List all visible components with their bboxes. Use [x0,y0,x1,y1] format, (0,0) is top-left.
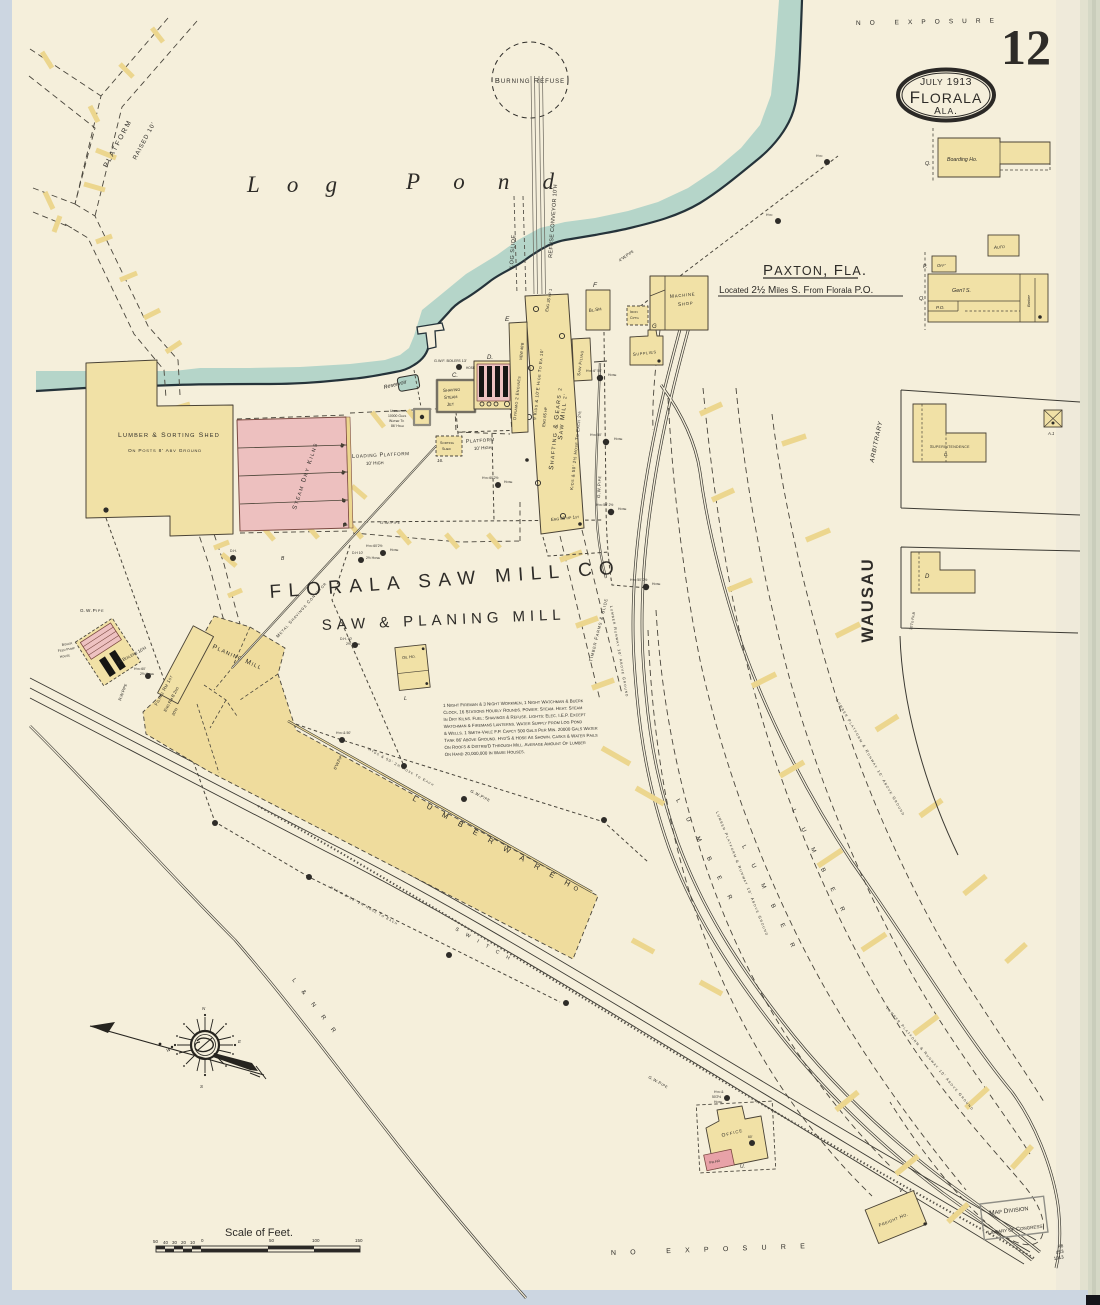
svg-text:10: 10 [190,1240,196,1245]
svg-text:150: 150 [355,1238,363,1243]
svg-text:E: E [505,316,510,323]
svg-text:HOSE: HOSE [714,1100,722,1104]
svg-text:HOSE: HOSE [466,366,475,370]
svg-text:HOSE: HOSE [504,480,512,484]
svg-text:U.: U. [740,1164,745,1170]
svg-text:D.: D. [487,355,493,361]
svg-text:A.1: A.1 [1047,431,1054,436]
svg-text:S: S [200,1084,203,1089]
svg-text:C.: C. [452,373,458,379]
svg-text:D.: D. [944,452,949,457]
svg-text:HYD & 50': HYD & 50' [336,731,351,735]
svg-text:HYD 50' 2½: HYD 50' 2½ [596,503,614,507]
svg-text:Scale of Feet.: Scale of Feet. [225,1227,293,1239]
svg-text:SUPERINTENDENCE: SUPERINTENDENCE [930,444,970,449]
svg-text:Q.: Q. [925,161,931,167]
svg-text:HYD 6" 50': HYD 6" 50' [586,369,602,373]
svg-text:30: 30 [172,1240,178,1245]
svg-text:JULY 1913: JULY 1913 [920,76,972,88]
svg-text:JET: JET [447,401,455,407]
svg-text:HOSE: HOSE [652,582,660,586]
svg-text:G.W.PIPE: G.W.PIPE [80,608,104,613]
svg-text:10000 GALS: 10000 GALS [388,414,406,418]
svg-text:2½ HOSE: 2½ HOSE [346,642,360,646]
svg-text:HYD &: HYD & [714,1090,724,1094]
svg-text:P.O.: P.O. [936,305,945,310]
svg-text:2½ HOSE: 2½ HOSE [140,672,154,676]
svg-text:50: 50 [153,1239,159,1244]
svg-text:HOSE: HOSE [618,507,626,511]
svg-text:HYD 60': HYD 60' [134,667,146,671]
svg-text:HYD 60'2½: HYD 60'2½ [482,476,499,480]
svg-text:PAXTON, FLA.: PAXTON, FLA. [763,262,867,279]
svg-text:HYD: HYD [766,213,772,217]
svg-text:D.H.: D.H. [230,549,237,553]
svg-text:IRON: IRON [630,310,638,314]
svg-text:2½ HOSE: 2½ HOSE [366,556,380,560]
svg-text:STEAM: STEAM [444,394,458,400]
svg-text:HYD: HYD [816,154,822,158]
svg-text:50'2½: 50'2½ [712,1095,721,1099]
svg-text:16.: 16. [437,458,443,463]
svg-text:UNDERWRS: UNDERWRS [390,409,407,413]
svg-text:D.H. 60': D.H. 60' [340,637,352,641]
svg-text:10' HIGH: 10' HIGH [366,460,384,466]
svg-text:86' HIGH: 86' HIGH [391,424,404,428]
svg-text:G.W.F. BOILERS 13': G.W.F. BOILERS 13' [434,359,467,363]
svg-text:OFF': OFF' [937,263,946,268]
svg-text:WATER TK: WATER TK [389,419,404,423]
svg-text:HOSE: HOSE [608,373,616,377]
svg-text:12: 12 [1001,19,1051,75]
svg-text:HOSE: HOSE [390,548,398,552]
svg-text:D.H 10': D.H 10' [352,551,364,555]
svg-text:HYD 50' 2½: HYD 50' 2½ [630,578,648,582]
svg-text:CPTG: CPTG [630,316,639,320]
svg-text:SORTING: SORTING [440,441,455,445]
svg-text:D: D [925,574,930,580]
svg-text:ALA.: ALA. [934,106,958,117]
svg-text:HYD 60'2½: HYD 60'2½ [366,544,383,548]
svg-text:60': 60' [748,1135,753,1139]
svg-text:AUTO: AUTO [993,244,1005,250]
svg-text:LUMBER & SORTING SHED: LUMBER & SORTING SHED [118,432,220,439]
svg-text:HYD 50': HYD 50' [590,433,602,437]
svg-text:40: 40 [163,1240,169,1245]
svg-text:Q.: Q. [919,296,925,302]
svg-text:G.W.PIPE: G.W.PIPE [380,520,401,525]
svg-text:Located 2½ Miles S. From Flora: Located 2½ Miles S. From Florala P.O. [719,285,873,296]
svg-text:L: L [404,696,407,702]
svg-text:G: G [652,324,657,330]
svg-text:WAUSAU: WAUSAU [859,557,877,642]
svg-text:Barber: Barber [1026,294,1031,307]
svg-text:FLORALA: FLORALA [910,88,983,107]
svg-text:Gen'l S.: Gen'l S. [952,288,971,294]
svg-text:20: 20 [181,1240,187,1245]
svg-text:50: 50 [269,1238,275,1243]
svg-text:SHED: SHED [442,447,452,451]
svg-text:100: 100 [312,1238,320,1243]
svg-text:Boarding Ho.: Boarding Ho. [947,157,977,163]
svg-text:HOSE: HOSE [614,437,622,441]
